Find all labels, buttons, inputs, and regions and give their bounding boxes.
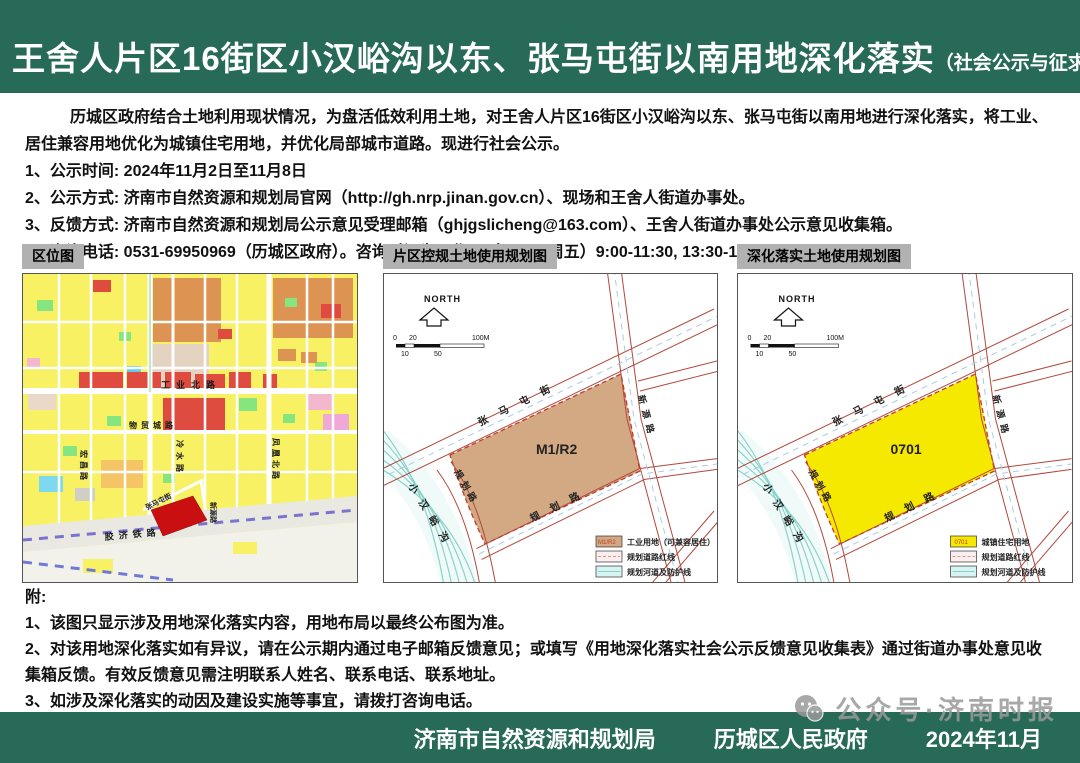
svg-text:10: 10 bbox=[756, 351, 764, 358]
footer-org-district-gov: 历城区人民政府 bbox=[714, 722, 868, 754]
footer-banner: 济南市自然资源和规划局 历城区人民政府 2024年11月 bbox=[0, 712, 1080, 763]
notice-method-line: 2、公示方式: 济南市自然资源和规划局官网（http://gh.nrp.jina… bbox=[25, 185, 1055, 212]
intro-section: 历城区政府结合土地利用现状情况，为盘活低效利用土地，对王舍人片区16街区小汉峪沟… bbox=[0, 104, 1080, 266]
svg-text:50: 50 bbox=[434, 351, 442, 358]
parcel-label: M1/R2 bbox=[536, 441, 577, 457]
note-item-2: 2、对该用地深化落实如有异议，请在公示期内通过电子邮箱反馈意见；或填写《用地深化… bbox=[25, 637, 1055, 689]
svg-text:100M: 100M bbox=[472, 335, 490, 342]
panel-title-detail: 深化落实土地使用规划图 bbox=[737, 244, 911, 269]
page-title: 王舍人片区16街区小汉峪沟以东、张马屯街以南用地深化落实 bbox=[0, 14, 935, 80]
svg-text:10: 10 bbox=[401, 351, 409, 358]
detail-plan-panel: 深化落实土地使用规划图 bbox=[737, 244, 1073, 588]
control-plan-panel: 片区控规土地使用规划图 bbox=[383, 244, 718, 588]
public-notice-poster: 王舍人片区16街区小汉峪沟以东、张马屯街以南用地深化落实 （社会公示与征求意见）… bbox=[0, 0, 1080, 763]
parcel-blob bbox=[153, 278, 221, 342]
svg-text:NORTH: NORTH bbox=[424, 294, 461, 304]
svg-text:规划河道及防护线: 规划河道及防护线 bbox=[982, 567, 1046, 577]
svg-text:50: 50 bbox=[789, 351, 797, 358]
svg-text:冷水路: 冷水路 bbox=[175, 440, 185, 476]
feedback-method-line: 3、反馈方式: 济南市自然资源和规划局公示意见受理邮箱（ghjgslicheng… bbox=[25, 212, 1055, 239]
notice-time-line: 1、公示时间: 2024年11月2日至11月8日 bbox=[25, 158, 1055, 185]
footer-date: 2024年11月 bbox=[926, 722, 1042, 754]
header-banner: 王舍人片区16街区小汉峪沟以东、张马屯街以南用地深化落实 （社会公示与征求意见） bbox=[0, 0, 1080, 93]
page-subtitle: （社会公示与征求意见） bbox=[935, 18, 1080, 75]
svg-text:0: 0 bbox=[748, 335, 752, 342]
panel-title-control: 片区控规土地使用规划图 bbox=[383, 244, 557, 269]
svg-text:20: 20 bbox=[764, 335, 772, 342]
footer-org-planning-bureau: 济南市自然资源和规划局 bbox=[414, 722, 656, 754]
svg-text:凤凰北路: 凤凰北路 bbox=[271, 438, 281, 482]
note-item-1: 1、该图只显示涉及用地深化落实内容，用地布局以最终公布图为准。 bbox=[25, 611, 1055, 637]
svg-text:20: 20 bbox=[409, 335, 417, 342]
svg-text:规划河道及防护线: 规划河道及防护线 bbox=[627, 567, 691, 577]
svg-text:0: 0 bbox=[393, 335, 397, 342]
svg-text:100M: 100M bbox=[827, 335, 845, 342]
svg-text:工业用地（可兼容居住）: 工业用地（可兼容居住） bbox=[627, 537, 715, 547]
svg-text:物贸城路: 物贸城路 bbox=[129, 420, 177, 430]
svg-text:0701: 0701 bbox=[955, 540, 969, 546]
svg-text:规划道路红线: 规划道路红线 bbox=[627, 552, 675, 562]
svg-text:新源路: 新源路 bbox=[209, 502, 218, 524]
location-map: 工业北路 物贸城路 冷水路 凤凰北路 宏昌路 新源路 张马屯街 胶济铁路 bbox=[22, 273, 358, 583]
road-label: 工业北路 bbox=[161, 379, 221, 390]
location-map-panel: 区位图 bbox=[22, 244, 358, 588]
svg-text:城镇住宅用地: 城镇住宅用地 bbox=[982, 537, 1030, 547]
panel-title-location: 区位图 bbox=[22, 244, 84, 269]
parcel-label: 0701 bbox=[891, 441, 922, 457]
control-plan-map: M1/R2 张马屯街 新源路 规划路 规划路 小汉峪沟 NORTH 0 20 bbox=[383, 273, 718, 583]
intro-paragraph: 历城区政府结合土地利用现状情况，为盘活低效利用土地，对王舍人片区16街区小汉峪沟… bbox=[25, 104, 1055, 158]
svg-text:NORTH: NORTH bbox=[779, 294, 816, 304]
notes-heading: 附: bbox=[25, 585, 1055, 611]
svg-text:规划道路红线: 规划道路红线 bbox=[982, 552, 1030, 562]
svg-text:M1/R2: M1/R2 bbox=[598, 540, 616, 546]
svg-text:宏昌路: 宏昌路 bbox=[79, 450, 89, 483]
detail-plan-map: 0701 张马屯街 新源路 规划路 规划路 小汉峪沟 NORTH 0 20 10… bbox=[737, 273, 1073, 583]
